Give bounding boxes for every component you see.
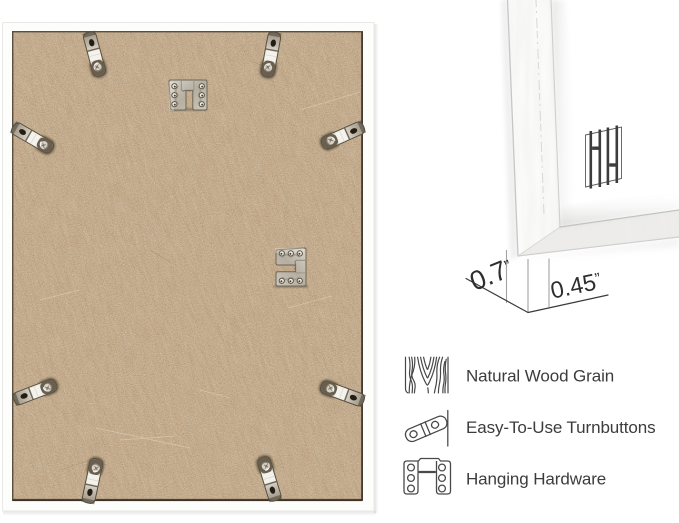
- svg-text:Hanging Hardware: Hanging Hardware: [466, 470, 606, 489]
- svg-text:Natural Wood Grain: Natural Wood Grain: [466, 367, 614, 386]
- svg-text:Easy-To-Use Turnbuttons: Easy-To-Use Turnbuttons: [466, 418, 656, 437]
